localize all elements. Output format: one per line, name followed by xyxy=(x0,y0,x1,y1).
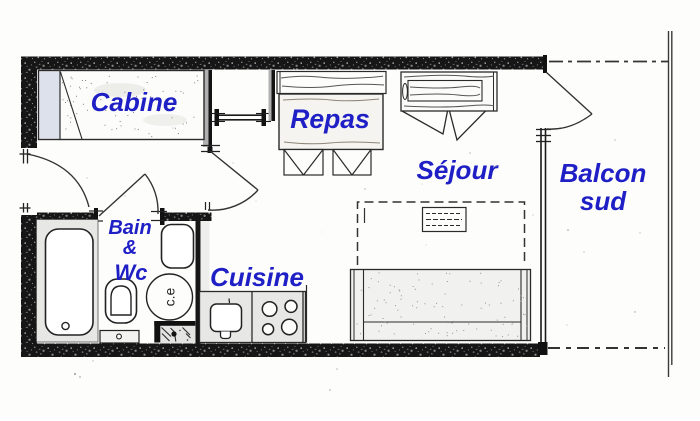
svg-text:c.e: c.e xyxy=(162,287,178,306)
svg-text:&: & xyxy=(123,237,137,259)
svg-text:sud: sud xyxy=(580,186,627,216)
svg-text:Repas: Repas xyxy=(290,104,370,134)
svg-text:Cuisine: Cuisine xyxy=(210,262,304,292)
svg-text:Séjour: Séjour xyxy=(417,155,500,185)
svg-text:Wc: Wc xyxy=(115,260,148,285)
svg-text:Balcon: Balcon xyxy=(560,158,647,188)
svg-text:Bain: Bain xyxy=(108,217,151,239)
svg-text:Cabine: Cabine xyxy=(91,87,178,117)
